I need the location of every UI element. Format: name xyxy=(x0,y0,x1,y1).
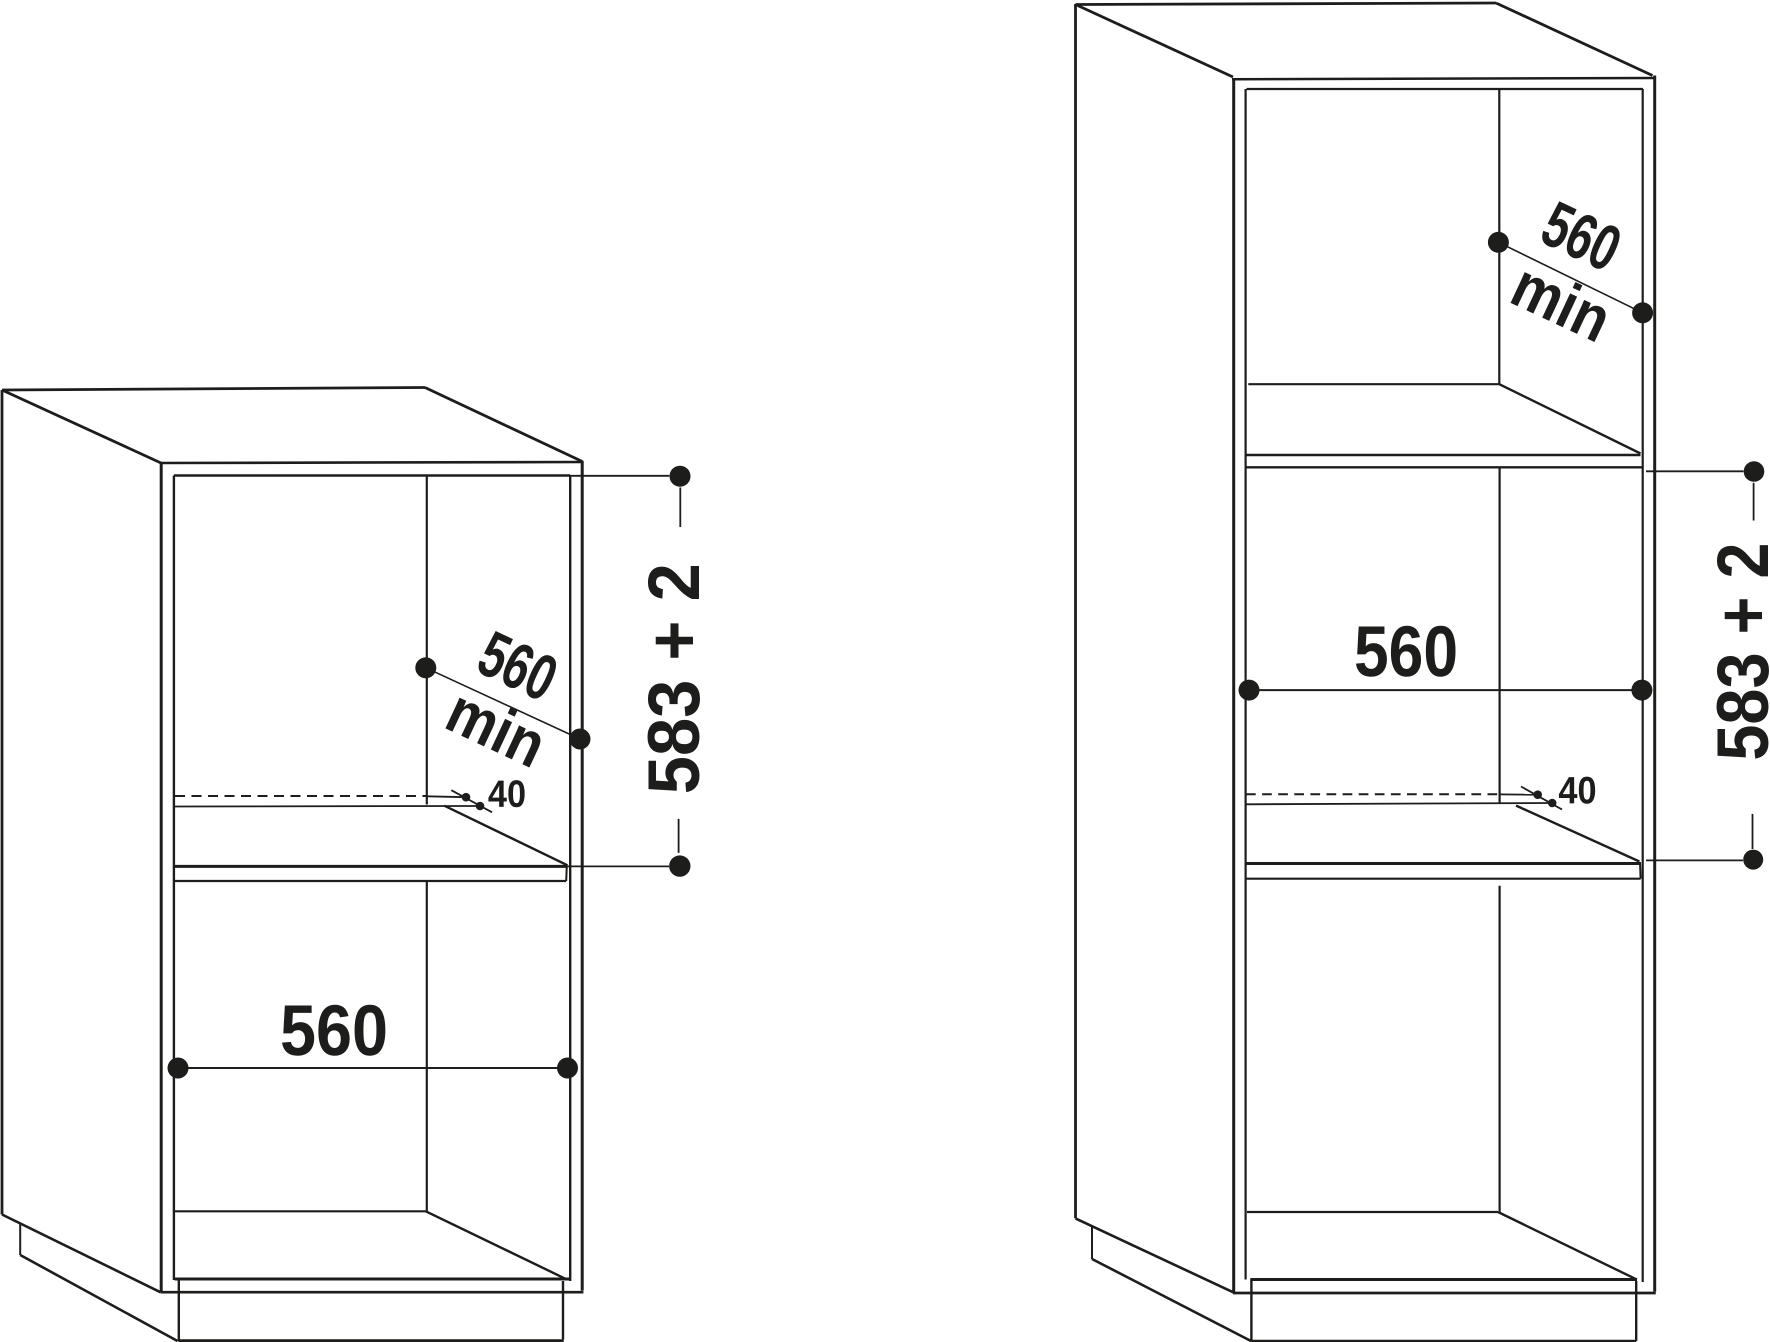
svg-text:560: 560 xyxy=(280,991,388,1071)
svg-text:583 + 2: 583 + 2 xyxy=(634,563,715,794)
svg-text:560: 560 xyxy=(1354,612,1458,692)
svg-text:583 + 2: 583 + 2 xyxy=(1703,543,1770,761)
